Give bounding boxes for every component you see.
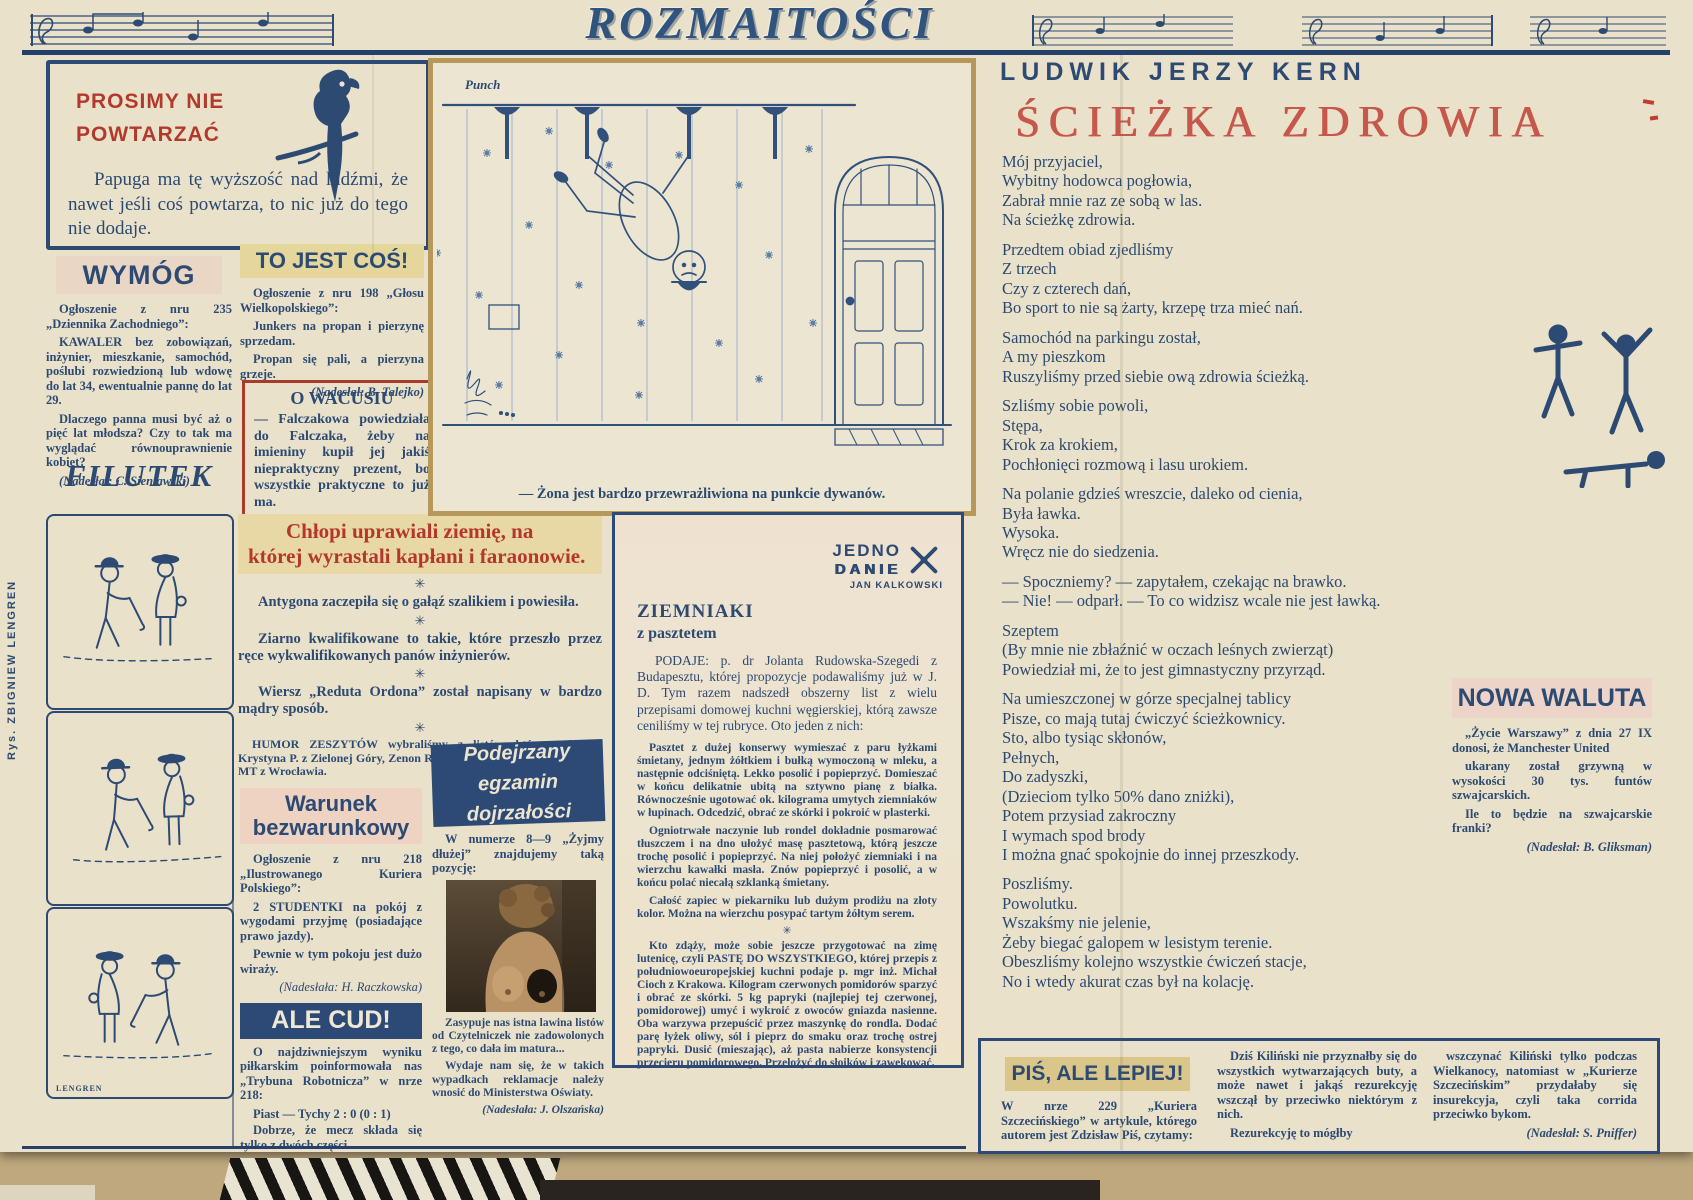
- poem-stanza: Szeptem (By mnie nie zbłaźnić w oczach l…: [1002, 621, 1442, 679]
- wymog-p2: KAWALER bez zobowiązań, inżynier, mieszk…: [46, 335, 232, 408]
- masthead-title: ROZMAITOŚCI: [520, 0, 1000, 52]
- wymog-p1: Ogłoszenie z nru 235 „Dziennika Zachodni…: [46, 302, 232, 331]
- wymog-title: WYMÓG: [56, 256, 222, 294]
- crossed-cutlery-icon: [905, 541, 943, 579]
- nowa-waluta-p2: ukarany został grzywną w wysokości 30 ty…: [1452, 759, 1652, 803]
- poem-stanza: Na umieszczonej w górze specjalnej tabli…: [1002, 689, 1442, 864]
- comic-signature: LENGREN: [56, 1084, 103, 1093]
- poem-stanza: Mój przyjaciel, Wybitny hodowca pogłowia…: [1002, 152, 1442, 230]
- scan-background-strip: [0, 1185, 95, 1200]
- logo-line2: DANIE: [813, 561, 901, 578]
- cartoon-source-label: Punch: [465, 77, 500, 93]
- pis-box: PIŚ, ALE LEPIEJ! W nrze 229 „Kuriera Szc…: [978, 1038, 1660, 1154]
- o-wacusiu-body: — Falczakowa powiedziała do Falczaka, że…: [254, 412, 430, 511]
- podejrzany-p2: Zasypuje nas istna lawina listów od Czyt…: [432, 1017, 604, 1057]
- newspaper-paper: ROZMAITOŚCI PROSIMY NIE POWTARZAĆ: [0, 0, 1693, 1152]
- warunek-title: Warunek bezwarunkowy: [240, 788, 422, 844]
- bottom-rule: [22, 1146, 966, 1149]
- music-staff-right3-icon: [1528, 14, 1668, 46]
- cartoon-box: Punch: [428, 58, 976, 516]
- fold-line: [372, 55, 374, 255]
- red-mark: [1650, 115, 1658, 120]
- warunek-p2: 2 STUDENTKI na pokój z wygodami przyjmę …: [240, 900, 422, 944]
- exercise-figures-icon: [1528, 298, 1678, 488]
- no-repeat-body: Papuga ma tę wyższość nad ludźmi, że naw…: [68, 168, 408, 242]
- scan-background-stripes: [220, 1158, 560, 1200]
- chlopi-item3: Wiersz „Reduta Ordona” został napisany w…: [238, 684, 602, 717]
- music-staff-left-icon: [28, 12, 336, 48]
- nowa-waluta-section: NOWA WALUTA „Życie Warszawy” z dnia 27 I…: [1452, 678, 1652, 854]
- no-repeat-title: PROSIMY NIE POWTARZAĆ: [76, 86, 224, 151]
- pis-col2a: Dziś Kiliński nie przyznałby się do wszy…: [1217, 1049, 1417, 1122]
- nowa-waluta-p1: „Życie Warszawy” z dnia 27 IX donosi, że…: [1452, 726, 1652, 755]
- ale-cud-score: Piast — Tychy 2 : 0 (0 : 1): [240, 1107, 422, 1122]
- music-staff-right2-icon: [1300, 14, 1495, 46]
- warunek-p1: Ogłoszenie z nru 218 „Ilustrowanego Kuri…: [240, 852, 422, 896]
- warunek-section: Warunek bezwarunkowy Ogłoszenie z nru 21…: [240, 788, 422, 1171]
- pis-col3: wszczynać Kiliński tylko podczas Wielkan…: [1433, 1049, 1637, 1122]
- podejrzany-p1: W numerze 8—9 „Żyjmy dłużej” znajdujemy …: [432, 832, 604, 876]
- recipe-step4: Kto zdąży, może sobie jeszcze przygotowa…: [637, 940, 937, 1070]
- pis-col2b: Rezurekcyję to mógłby: [1217, 1126, 1417, 1141]
- podejrzany-p3: Wydaje nam się, że w takich wypadkach re…: [432, 1060, 604, 1100]
- to-jest-cos-title: TO JEST COŚ!: [240, 244, 424, 278]
- asterisk-divider: ✳: [637, 924, 937, 937]
- chlopi-title: Chłopi uprawiali ziemię, na której wyras…: [238, 514, 602, 574]
- podejrzany-title: Podejrzany egzamin dojrzałości: [431, 739, 606, 827]
- poem-title: ŚCIEŻKA ZDROWIA: [1015, 96, 1552, 147]
- column-rule: [232, 792, 234, 1148]
- scan-background-bar: [540, 1180, 1100, 1200]
- recipe-intro: PODAJE: p. dr Jolanta Rudowska-Szegedi z…: [637, 653, 937, 734]
- podejrzany-credit: (Nadesłała: J. Olszańska): [432, 1104, 604, 1117]
- music-staff-right-icon: [1030, 14, 1235, 46]
- poem-stanza: Na polanie gdzieś wreszcie, daleko od ci…: [1002, 484, 1442, 562]
- chlopi-item2: Ziarno kwalifikowane to takie, które prz…: [238, 631, 602, 664]
- comic-panel: LENGREN: [46, 907, 234, 1099]
- asterisk-divider: ✳: [238, 666, 602, 682]
- wymog-section: WYMÓG Ogłoszenie z nru 235 „Dziennika Za…: [46, 256, 232, 488]
- red-mark: [1643, 99, 1655, 105]
- fold-line: [1120, 55, 1123, 1150]
- o-wacusiu-title: O WACUSIU: [254, 388, 430, 409]
- logo-author: JAN KALKOWSKI: [813, 580, 943, 591]
- poem-stanza: Samochód na parkingu został, A my pieszk…: [1002, 328, 1442, 386]
- to-jest-cos-p1: Ogłoszenie z nru 198 „Głosu Wielkopolski…: [240, 286, 424, 315]
- header-rule: [22, 50, 1670, 55]
- filutek-title: FILUTEK: [46, 458, 232, 494]
- comic-panel: [46, 711, 234, 906]
- nowa-waluta-p3: Ile to będzie na szwajcarskie franki?: [1452, 807, 1652, 836]
- poem-author: LUDWIK JERZY KERN: [1000, 58, 1367, 87]
- nude-photo: [446, 880, 596, 1012]
- recipe-step2: Ogniotrwałe naczynie lub rondel dokładni…: [637, 825, 937, 890]
- poem-stanza: Przedtem obiad zjedliśmy Z trzech Czy z …: [1002, 240, 1442, 318]
- jedno-danie-box: JEDNO DANIE JAN KALKOWSKI ZIEMNIAKI z pa…: [612, 512, 964, 1068]
- logo-line1: JEDNO: [813, 541, 901, 561]
- to-jest-cos-section: TO JEST COŚ! Ogłoszenie z nru 198 „Głosu…: [240, 244, 424, 400]
- asterisk-divider: ✳: [238, 720, 602, 736]
- comic-panel: [46, 514, 234, 710]
- poem-stanza: — Spoczniemy? — zapytałem, czekając na b…: [1002, 572, 1442, 611]
- to-jest-cos-p2: Junkers na propan i pierzynę sprzedam.: [240, 319, 424, 348]
- scanned-newspaper-page: ROZMAITOŚCI PROSIMY NIE POWTARZAĆ: [0, 0, 1693, 1200]
- recipe-step3: Całość zapiec w piekarniku lub dużym pro…: [637, 895, 937, 921]
- recipe-title: ZIEMNIAKI: [637, 601, 937, 623]
- o-wacusiu-box: O WACUSIU — Falczakowa powiedziała do Fa…: [242, 380, 442, 518]
- asterisk-divider: ✳: [238, 613, 602, 629]
- poem-stanza: Poszliśmy. Powolutku. Wszakśmy nie jelen…: [1002, 874, 1442, 991]
- ale-cud-p1: O najdziwniejszym wyniku piłkarskim poin…: [240, 1045, 422, 1103]
- poem-stanza: Szliśmy sobie powoli, Stępa, Krok za kro…: [1002, 396, 1442, 474]
- chlopi-item1: Antygona zaczepiła się o gałąź szalikiem…: [238, 594, 602, 611]
- ale-cud-title: ALE CUD!: [240, 1003, 422, 1039]
- asterisk-divider: ✳: [238, 576, 602, 592]
- cartoon-caption: — Żona jest bardzo przewrażliwiona na pu…: [433, 486, 971, 503]
- nowa-waluta-credit: (Nadesłał: B. Gliksman): [1452, 840, 1652, 855]
- warunek-p3: Pewnie w tym pokoju jest dużo wiraży.: [240, 947, 422, 976]
- warunek-credit: (Nadesłała: H. Raczkowska): [240, 980, 422, 995]
- pis-title: PIŚ, ALE LEPIEJ!: [1005, 1057, 1190, 1091]
- recipe-step1: Pasztet z dużej konserwy wymieszać z par…: [637, 742, 937, 820]
- podejrzany-section: Podejrzany egzamin dojrzałości W numerze…: [432, 742, 604, 1118]
- pis-col1: W nrze 229 „Kuriera Szczecińskiego” w ar…: [1001, 1099, 1197, 1143]
- side-artist-credit: Rys. ZBIGNIEW LENGREN: [6, 580, 18, 760]
- to-jest-cos-p3: Propan się pali, a pierzyna grzeje.: [240, 352, 424, 381]
- recipe-subtitle: z pasztetem: [637, 625, 937, 643]
- punch-cartoon-drawing: [437, 93, 957, 465]
- poem-body: Mój przyjaciel, Wybitny hodowca pogłowia…: [1002, 152, 1442, 1001]
- jedno-danie-logo: JEDNO DANIE JAN KALKOWSKI: [813, 541, 943, 591]
- pis-credit: (Nadesłał: S. Pniffer): [1433, 1126, 1637, 1141]
- nowa-waluta-title: NOWA WALUTA: [1452, 678, 1652, 718]
